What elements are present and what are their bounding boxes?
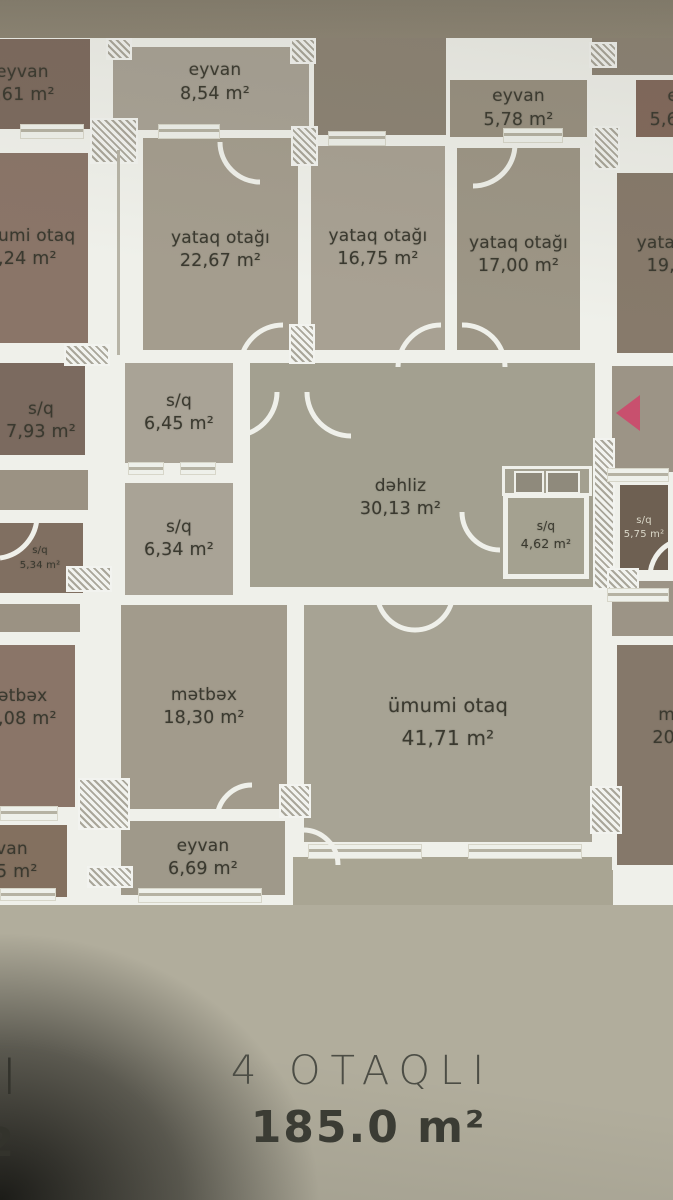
paper-top-band — [0, 0, 673, 38]
door-swing-arcs — [0, 0, 673, 905]
edge-text-fragment-top: I — [2, 1048, 17, 1106]
edge-text-fragment-bottom: 2 — [0, 1120, 14, 1166]
unit-total-area: 185.0 m² — [0, 1102, 673, 1153]
unit-type-title: 4 OTAQLI — [0, 1048, 673, 1094]
red-arrow-icon — [616, 395, 640, 431]
floor-plan-photo: eyvan ,61 m² umi otaq ,24 m² s/q 7,93 m²… — [0, 0, 673, 1200]
